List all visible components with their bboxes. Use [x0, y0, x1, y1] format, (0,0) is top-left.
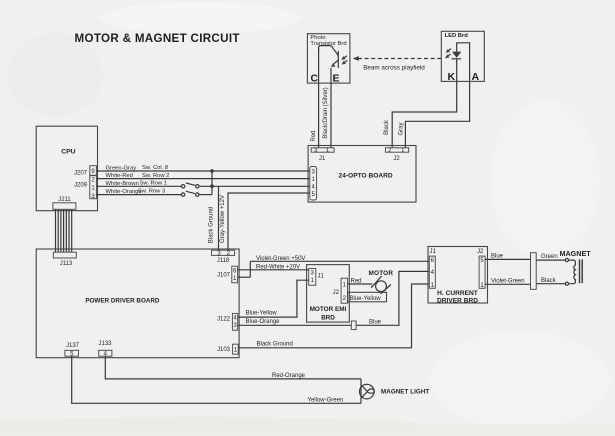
svg-text:Sw. Row 2: Sw. Row 2 — [142, 173, 169, 179]
svg-text:MAGNET: MAGNET — [560, 249, 592, 258]
svg-text:J122: J122 — [217, 316, 231, 322]
svg-text:Black/Drain (Silver): Black/Drain (Silver) — [323, 87, 329, 138]
svg-text:Blue: Blue — [369, 319, 382, 325]
svg-text:J107: J107 — [217, 273, 231, 279]
svg-text:Sw. Col. 8: Sw. Col. 8 — [142, 165, 168, 171]
svg-text:Blue-Orange: Blue-Orange — [246, 319, 281, 325]
svg-text:White-Orange: White-Orange — [106, 189, 142, 195]
svg-text:Gray-Yellow +12V: Gray-Yellow +12V — [220, 195, 226, 243]
svg-text:E: E — [333, 73, 340, 85]
svg-text:J113: J113 — [60, 261, 73, 267]
svg-text:J211: J211 — [58, 197, 71, 203]
svg-text:Green-Gray: Green-Gray — [106, 165, 137, 171]
svg-text:J1: J1 — [319, 156, 326, 162]
svg-text:CPU: CPU — [61, 148, 75, 155]
svg-text:Gray: Gray — [398, 122, 404, 135]
svg-text:BRD: BRD — [321, 315, 335, 322]
svg-text:J118: J118 — [217, 258, 230, 264]
svg-text:J207: J207 — [74, 171, 88, 177]
svg-text:J2: J2 — [333, 290, 340, 296]
svg-text:White-Brown: White-Brown — [106, 181, 139, 187]
svg-text:J133: J133 — [98, 341, 112, 347]
svg-text:Blue-Yellow: Blue-Yellow — [246, 311, 278, 317]
svg-text:Yellow-Green: Yellow-Green — [308, 397, 344, 403]
svg-text:Red: Red — [311, 130, 317, 141]
svg-text:MAGNET LIGHT: MAGNET LIGHT — [381, 388, 429, 395]
svg-text:Green: Green — [541, 254, 558, 260]
svg-text:Red-Orange: Red-Orange — [272, 373, 306, 379]
svg-text:Blue-Yellow: Blue-Yellow — [350, 296, 382, 302]
svg-text:J209: J209 — [74, 183, 88, 189]
svg-text:J137: J137 — [66, 343, 80, 349]
svg-text:24-OPTO BOARD: 24-OPTO BOARD — [339, 173, 393, 180]
svg-text:Red: Red — [351, 278, 362, 284]
svg-text:Violet-Green: Violet-Green — [491, 279, 525, 285]
svg-text:H. CURRENT: H. CURRENT — [437, 290, 478, 297]
svg-text:Beam across playfield: Beam across playfield — [363, 65, 425, 72]
svg-text:POWER DRIVER BOARD: POWER DRIVER BOARD — [85, 298, 160, 305]
svg-text:Sw. Row 1: Sw. Row 1 — [140, 181, 167, 187]
svg-text:DRIVER BRD: DRIVER BRD — [437, 298, 478, 305]
svg-text:Black Ground: Black Ground — [257, 341, 293, 347]
svg-text:Sw. Row 3: Sw. Row 3 — [138, 188, 165, 194]
svg-text:White-Red: White-Red — [106, 173, 133, 179]
svg-text:Photo: Photo — [310, 35, 325, 41]
svg-text:MOTOR: MOTOR — [369, 270, 394, 277]
svg-text:J1: J1 — [430, 249, 437, 255]
svg-text:J1: J1 — [318, 273, 325, 279]
svg-text:MOTOR EMI: MOTOR EMI — [310, 306, 347, 313]
svg-text:Red-White +20V: Red-White +20V — [256, 264, 300, 270]
svg-text:Black: Black — [541, 278, 557, 284]
svg-text:A: A — [472, 71, 480, 83]
svg-text:J103: J103 — [217, 347, 231, 353]
svg-text:Violet-Green +50V: Violet-Green +50V — [256, 256, 305, 262]
svg-text:J2: J2 — [393, 156, 400, 162]
svg-text:MOTOR & MAGNET CIRCUIT: MOTOR & MAGNET CIRCUIT — [75, 32, 240, 45]
svg-text:Blue: Blue — [491, 254, 504, 260]
svg-text:C: C — [311, 73, 319, 85]
svg-text:Black Ground: Black Ground — [209, 207, 215, 243]
svg-text:LED Brd: LED Brd — [445, 33, 469, 39]
svg-text:Black: Black — [384, 119, 390, 135]
svg-text:K: K — [448, 71, 456, 83]
svg-text:J2: J2 — [477, 249, 484, 255]
